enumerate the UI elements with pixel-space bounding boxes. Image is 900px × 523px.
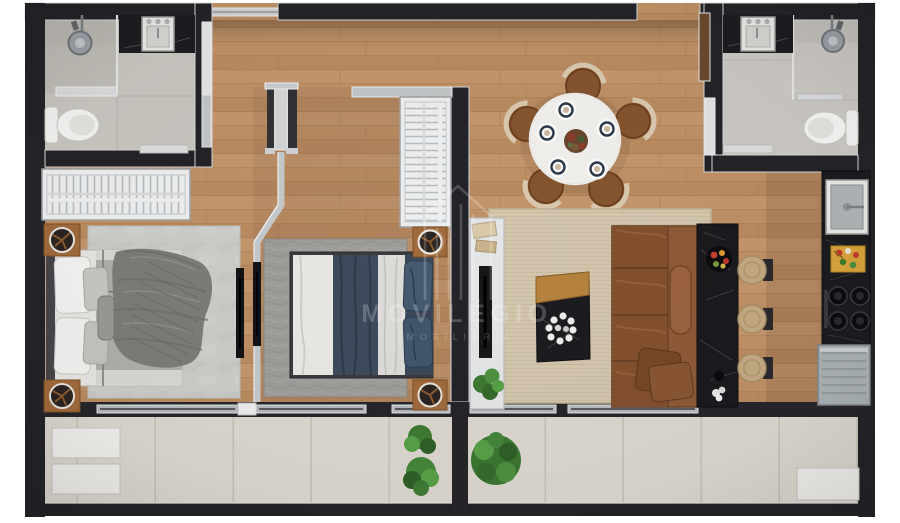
svg-text:MOVILÉGIO: MOVILÉGIO [361,299,552,328]
svg-text:IMOBILIÁRIA: IMOBILIÁRIA [398,332,516,343]
